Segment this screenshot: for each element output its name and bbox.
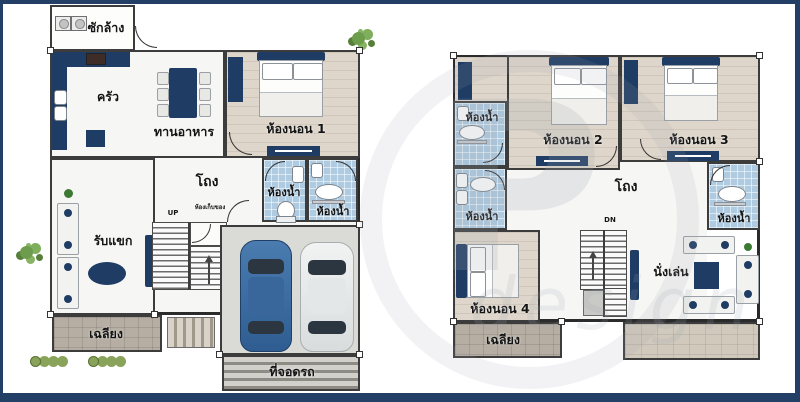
label-bedroom3: ห้องนอน 3 bbox=[669, 130, 729, 150]
entry-steps bbox=[167, 317, 215, 348]
toilet-icon bbox=[459, 125, 485, 140]
tree-icon bbox=[352, 32, 365, 45]
column-pad bbox=[756, 318, 763, 325]
column-pad bbox=[450, 318, 457, 325]
column-pad bbox=[47, 47, 54, 54]
sink-icon bbox=[292, 166, 304, 183]
plant-icon bbox=[744, 243, 752, 251]
label-bath1: ห้องน้ำ bbox=[268, 183, 301, 201]
sitting-table bbox=[694, 262, 719, 289]
label-bath-mid: ห้องน้ำ bbox=[466, 207, 499, 225]
sofa bbox=[57, 203, 79, 255]
label-bath2: ห้องน้ำ bbox=[317, 202, 350, 220]
kitchen-island bbox=[86, 130, 105, 147]
label-up: UP bbox=[168, 209, 179, 217]
stairs-flight bbox=[152, 222, 189, 290]
bath-shelf bbox=[714, 202, 746, 206]
bed-blanket bbox=[552, 98, 606, 124]
bedroom1-dresser bbox=[267, 146, 320, 156]
column-pad bbox=[356, 351, 363, 358]
label-bedroom2: ห้องนอน 2 bbox=[543, 130, 603, 150]
label-bedroom1: ห้องนอน 1 bbox=[266, 119, 326, 139]
sink-icon bbox=[456, 190, 468, 205]
stairs2-flight bbox=[604, 288, 627, 317]
sofa bbox=[736, 255, 759, 304]
car-roof bbox=[248, 277, 284, 315]
stair-arrow-up-icon bbox=[205, 255, 213, 262]
stair-arrow-stem bbox=[592, 258, 594, 280]
car-windshield bbox=[308, 260, 345, 275]
column-pad bbox=[756, 52, 763, 59]
car-white bbox=[300, 242, 354, 352]
pillow bbox=[554, 68, 581, 85]
bed-headboard bbox=[456, 244, 467, 298]
pillow bbox=[470, 272, 486, 297]
bed-blanket bbox=[665, 95, 717, 120]
bedroom3-dresser bbox=[667, 151, 719, 161]
sofa bbox=[57, 257, 79, 309]
console-cabinet bbox=[630, 250, 639, 300]
car-rear-window bbox=[308, 321, 345, 334]
label-bath-right: ห้องน้ำ bbox=[718, 209, 751, 227]
label-dining: ทานอาหาร bbox=[154, 122, 214, 142]
wardrobe bbox=[228, 57, 243, 102]
dining-chair bbox=[157, 72, 169, 85]
bed-blanket bbox=[492, 245, 518, 297]
stair-rail bbox=[188, 222, 190, 290]
sink-icon bbox=[311, 163, 323, 178]
bed-blanket bbox=[260, 92, 322, 116]
washing-machine-icon bbox=[55, 16, 71, 31]
label-carpark: ที่จอดรถ bbox=[269, 362, 314, 382]
dining-chair bbox=[157, 104, 169, 117]
pillow bbox=[262, 63, 293, 80]
column-pad bbox=[47, 311, 54, 318]
floorplan-image: ซักล้าง ครัว ทานอาหาร ห้องนอน 1 bbox=[0, 0, 800, 402]
toilet-icon bbox=[718, 186, 746, 202]
dining-chair bbox=[199, 72, 211, 85]
column-pad bbox=[450, 52, 457, 59]
plant-icon bbox=[64, 189, 73, 198]
label-balcony: เฉลียง bbox=[486, 330, 520, 350]
pillow bbox=[667, 68, 693, 84]
toilet-tank bbox=[276, 216, 296, 223]
stair-arrow-up-icon bbox=[589, 251, 597, 258]
bedroom2-dresser bbox=[536, 156, 588, 166]
column-pad bbox=[356, 221, 363, 228]
label-laundry: ซักล้าง bbox=[88, 18, 125, 38]
label-dn: DN bbox=[604, 216, 616, 224]
coffee-table-oval bbox=[88, 262, 126, 285]
dining-chair bbox=[157, 88, 169, 101]
stair-arrow-stem bbox=[208, 262, 210, 284]
wardrobe bbox=[624, 60, 638, 104]
sofa bbox=[683, 296, 735, 314]
terrace-strip bbox=[623, 322, 760, 360]
car-windshield bbox=[248, 259, 284, 274]
label-storage: ห้องเก็บของ bbox=[195, 202, 226, 212]
stove-icon bbox=[86, 53, 106, 65]
column-pad bbox=[151, 311, 158, 318]
tree-icon bbox=[20, 246, 33, 259]
label-porch: เฉลียง bbox=[89, 324, 123, 344]
label-hall: โถง bbox=[196, 171, 219, 193]
dining-table bbox=[169, 68, 197, 118]
pillow bbox=[293, 63, 323, 80]
sofa bbox=[683, 236, 735, 254]
column-pad bbox=[756, 158, 763, 165]
sink-icon bbox=[456, 173, 468, 188]
wardrobe bbox=[458, 62, 472, 100]
car-roof bbox=[308, 278, 345, 314]
label-living: รับแขก bbox=[94, 231, 133, 251]
stair-rail bbox=[603, 230, 605, 317]
label-hall2: โถง bbox=[615, 176, 638, 198]
pillow bbox=[581, 68, 607, 85]
dining-chair bbox=[199, 104, 211, 117]
bush-row-icon bbox=[30, 356, 41, 367]
stairs2-landing bbox=[583, 290, 605, 316]
label-kitchen: ครัว bbox=[97, 87, 119, 107]
label-bedroom4: ห้องนอน 4 bbox=[470, 299, 530, 319]
kitchen-sink-icon bbox=[54, 106, 67, 121]
car-rear-window bbox=[248, 321, 284, 334]
kitchen-sink-icon bbox=[54, 90, 67, 105]
label-sitting: นั่งเล่น bbox=[653, 262, 688, 282]
car-blue bbox=[240, 240, 292, 352]
column-pad bbox=[216, 351, 223, 358]
pillow bbox=[470, 247, 486, 272]
washing-machine-icon bbox=[71, 16, 87, 31]
column-pad bbox=[558, 318, 565, 325]
column-pad bbox=[356, 47, 363, 54]
dining-chair bbox=[199, 88, 211, 101]
bush-row-icon bbox=[88, 356, 99, 367]
label-bath-top: ห้องน้ำ bbox=[466, 108, 499, 126]
pillow bbox=[693, 68, 718, 84]
toilet-icon bbox=[315, 184, 343, 200]
